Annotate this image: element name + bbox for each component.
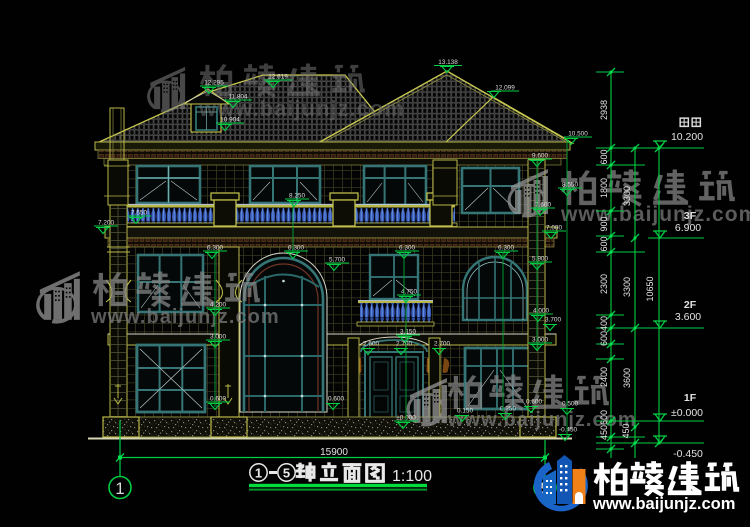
svg-text:2300: 2300 xyxy=(599,274,609,294)
svg-text:3.600: 3.600 xyxy=(675,311,701,323)
svg-text:600400: 600400 xyxy=(599,316,609,346)
svg-text:3600: 3600 xyxy=(622,368,632,388)
svg-text:11.804: 11.804 xyxy=(228,94,248,101)
svg-text:www.baijunjz.com: www.baijunjz.com xyxy=(592,495,735,513)
svg-text:1:100: 1:100 xyxy=(392,468,432,485)
svg-text:6.900: 6.900 xyxy=(675,222,701,234)
svg-text:±0.000: ±0.000 xyxy=(671,407,703,419)
svg-text:3300: 3300 xyxy=(622,277,632,297)
svg-text:3300: 3300 xyxy=(622,186,632,206)
svg-text:8.250: 8.250 xyxy=(289,193,305,200)
svg-text:3.000: 3.000 xyxy=(532,337,548,344)
svg-text:0.600: 0.600 xyxy=(328,396,344,403)
svg-text:600: 600 xyxy=(599,236,609,251)
svg-text:www.baijunjz.com: www.baijunjz.com xyxy=(90,306,280,328)
svg-text:6.300: 6.300 xyxy=(498,245,514,252)
svg-text:7.600: 7.600 xyxy=(535,202,551,209)
svg-text:0.250: 0.250 xyxy=(500,406,516,413)
svg-text:8.550: 8.550 xyxy=(562,182,578,189)
svg-text:7.000: 7.000 xyxy=(546,225,562,232)
svg-text:600: 600 xyxy=(599,149,609,164)
svg-text:0.150: 0.150 xyxy=(457,408,473,415)
svg-text:0.600: 0.600 xyxy=(210,396,226,403)
svg-text:6.300: 6.300 xyxy=(399,245,415,252)
svg-text:3.150: 3.150 xyxy=(400,329,416,336)
svg-text:0.600: 0.600 xyxy=(526,399,542,406)
svg-text:7.550: 7.550 xyxy=(131,210,147,217)
svg-text:10650: 10650 xyxy=(645,276,655,301)
svg-text:9.600: 9.600 xyxy=(532,153,548,160)
svg-text:4.750: 4.750 xyxy=(401,289,417,296)
svg-text:900: 900 xyxy=(599,216,609,231)
svg-text:1F: 1F xyxy=(684,392,697,404)
svg-text:12.295: 12.295 xyxy=(204,80,224,87)
svg-text:2F: 2F xyxy=(684,299,697,311)
svg-text:3.000: 3.000 xyxy=(210,334,226,341)
svg-text:2.700: 2.700 xyxy=(396,341,412,348)
svg-text:-0.450: -0.450 xyxy=(673,448,703,460)
svg-text:2.700: 2.700 xyxy=(434,341,450,348)
svg-text:2400: 2400 xyxy=(599,367,609,387)
svg-text:450: 450 xyxy=(621,423,631,438)
svg-text:10.904: 10.904 xyxy=(220,117,240,124)
svg-text:3F: 3F xyxy=(684,210,697,222)
svg-text:15900: 15900 xyxy=(320,447,348,458)
svg-text:13.138: 13.138 xyxy=(438,59,458,66)
svg-text:2938: 2938 xyxy=(599,100,609,120)
svg-text:10.200: 10.200 xyxy=(671,131,703,143)
svg-text:5.900: 5.900 xyxy=(532,256,548,263)
svg-text:-0.450: -0.450 xyxy=(559,427,578,434)
svg-text:7.200: 7.200 xyxy=(98,220,114,227)
svg-text:1: 1 xyxy=(255,466,262,481)
svg-text:3.700: 3.700 xyxy=(545,317,561,324)
svg-text:www.baijunjz.com: www.baijunjz.com xyxy=(560,203,750,226)
svg-text:12.099: 12.099 xyxy=(495,85,515,92)
svg-text:0.500: 0.500 xyxy=(562,401,578,408)
svg-text:6.300: 6.300 xyxy=(288,245,304,252)
svg-text:4.000: 4.000 xyxy=(533,308,549,315)
svg-text:4.200: 4.200 xyxy=(210,302,226,309)
svg-text:6.300: 6.300 xyxy=(207,245,223,252)
svg-text:5.700: 5.700 xyxy=(329,257,345,264)
svg-text:450600: 450600 xyxy=(599,410,609,440)
svg-text:1800: 1800 xyxy=(599,178,609,198)
svg-text:2.600: 2.600 xyxy=(363,341,379,348)
svg-text:12.619: 12.619 xyxy=(268,74,288,81)
svg-text:10.500: 10.500 xyxy=(568,131,588,138)
svg-text:1: 1 xyxy=(115,479,124,498)
svg-text:5: 5 xyxy=(283,466,290,481)
